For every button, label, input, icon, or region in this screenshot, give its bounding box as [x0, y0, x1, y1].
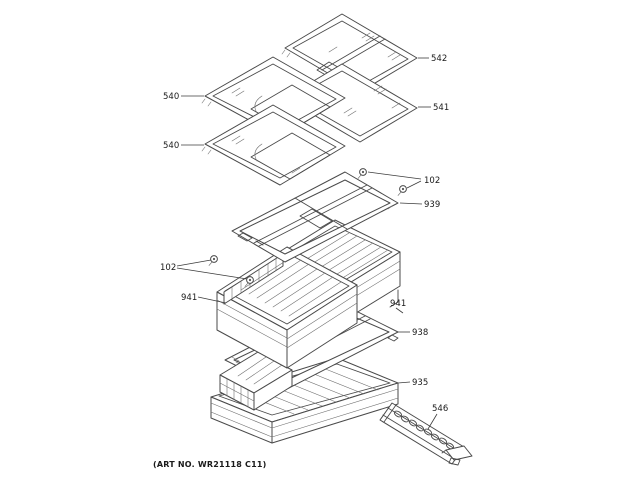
leader-102-left [177, 260, 247, 279]
art-number-text: (ART NO. WR21118 C11) [153, 460, 267, 469]
callout-935: 935 [412, 378, 428, 388]
leader-102-top [368, 172, 421, 188]
callout-540-upper: 540 [163, 92, 179, 102]
callout-540-lower: 540 [163, 141, 179, 151]
callout-941-left: 941 [181, 293, 197, 303]
callout-546: 546 [432, 404, 448, 414]
slide-rack-546 [380, 403, 472, 465]
callout-938: 938 [412, 328, 428, 338]
callout-542: 542 [431, 54, 447, 64]
callout-102-top: 102 [424, 176, 440, 186]
stud-102-top-b [398, 186, 406, 196]
callout-941-right: 941 [390, 299, 406, 309]
parts-diagram-page: 542 540 541 540 102 939 102 941 941 938 … [0, 0, 640, 480]
callout-102-left: 102 [160, 263, 176, 273]
callout-939: 939 [424, 200, 440, 210]
callout-541: 541 [433, 103, 449, 113]
leader-939 [400, 203, 422, 204]
leader-935 [398, 382, 410, 383]
exploded-parts-diagram: 542 540 541 540 102 939 102 941 941 938 … [0, 0, 640, 480]
stud-102-left-a [209, 256, 217, 266]
stud-102-top-a [358, 169, 366, 179]
leader-546 [428, 414, 437, 429]
